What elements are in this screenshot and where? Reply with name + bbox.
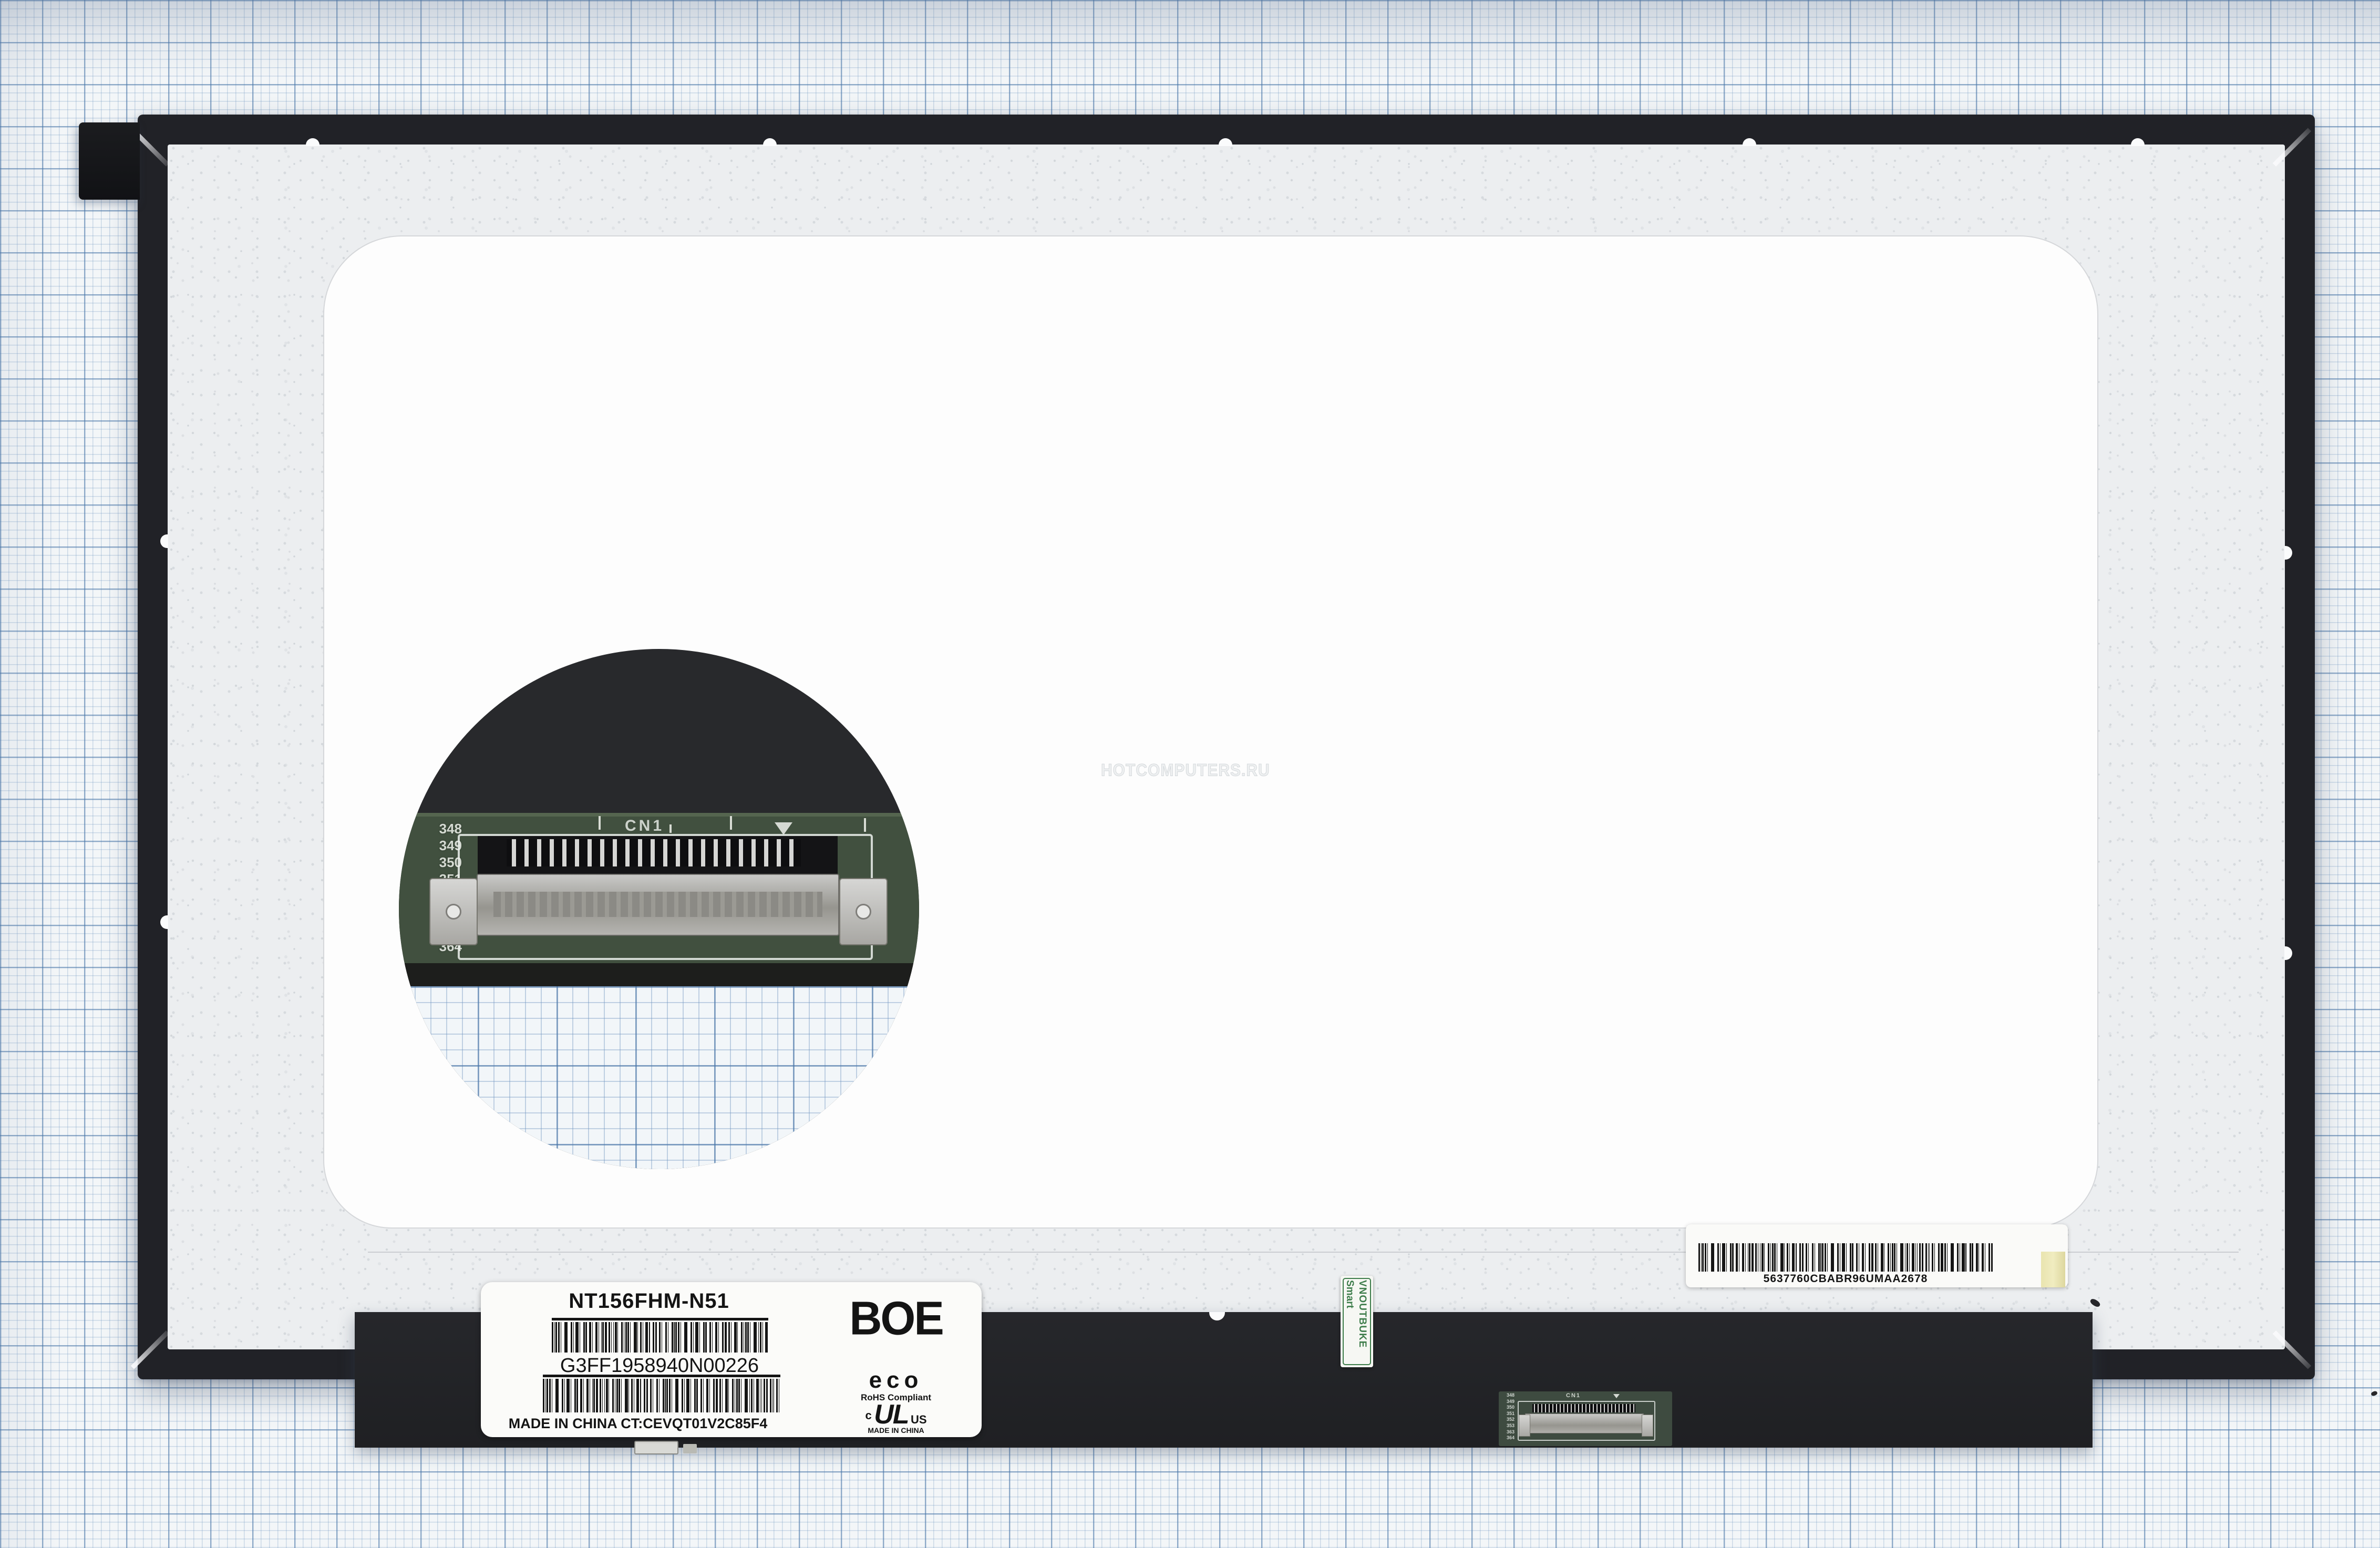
- silkscreen-tick: [864, 818, 866, 832]
- product-photo-lcd-panel: HOTCOMPUTERS.RU 348 349 350 351 352 353 …: [0, 0, 2380, 1548]
- pin-label: 352: [1500, 1417, 1514, 1423]
- barcode-serial: [543, 1379, 780, 1412]
- boe-logo: BOE: [817, 1292, 975, 1346]
- sticker-text: Smart VNOUTBUKE: [1343, 1280, 1368, 1363]
- pin-label: 349: [1500, 1399, 1514, 1405]
- mounting-tab-left: [79, 122, 140, 200]
- connector-designator: CN1: [625, 817, 664, 835]
- connector-end-tab-left: [429, 878, 478, 945]
- watermark-text: HOTCOMPUTERS.RU: [1101, 761, 1259, 781]
- silkscreen-tick: [599, 816, 601, 830]
- silkscreen-tick: [669, 824, 672, 833]
- connector-body-detail: [493, 892, 822, 917]
- serial-strip-code: 5637760CBABR96UMAA2678: [1698, 1273, 1993, 1285]
- polarity-triangle-icon: [775, 822, 792, 835]
- pin-label: 353: [1500, 1423, 1514, 1429]
- pin-label: 350: [1500, 1405, 1514, 1411]
- pin-label: 348: [1500, 1392, 1514, 1399]
- pin-label: 348: [418, 820, 462, 837]
- serial-barcode-strip: 5637760CBABR96UMAA2678: [1686, 1224, 2068, 1287]
- pin-label: 351: [1500, 1411, 1514, 1417]
- barcode-serial-strip: [1698, 1243, 1993, 1272]
- sticker-line2: VNOUTBUKE: [1357, 1280, 1368, 1348]
- magnified-graph-paper: [399, 986, 919, 1169]
- pin-label: 363: [1500, 1429, 1514, 1436]
- ul-logo: UL: [874, 1399, 908, 1430]
- connector-metal-body: [1525, 1413, 1644, 1433]
- ul-c-prefix: c: [865, 1409, 871, 1422]
- eco-logo: eco: [817, 1367, 975, 1394]
- pin-number-column-small: 348 349 350 351 352 353 363 364: [1500, 1392, 1514, 1441]
- pcb-edge-shadow: [399, 963, 919, 986]
- label-rule: [552, 1318, 768, 1320]
- serial-number: G3FF1958940N00226: [533, 1355, 786, 1377]
- connector-end-tab-left: [1519, 1415, 1530, 1437]
- ul-us-suffix: US: [911, 1413, 927, 1426]
- connector-metal-body: [477, 874, 839, 936]
- connector-pin-comb: [1532, 1404, 1635, 1412]
- connector-designator-small: CN1: [1566, 1392, 1581, 1399]
- silkscreen-tick: [730, 816, 732, 830]
- small-board-component: [683, 1444, 697, 1453]
- barcode-model: [552, 1322, 768, 1353]
- sticker-line1: Smart: [1344, 1280, 1355, 1308]
- connector-magnifier-inset: 348 349 350 351 352 353 363 364 CN1: [399, 649, 919, 1169]
- small-board-connector: [634, 1441, 678, 1454]
- connector-screw-left: [446, 904, 461, 920]
- yellow-pull-tab: [2041, 1252, 2065, 1287]
- pin-label: 364: [1500, 1435, 1514, 1441]
- reseller-sticker: Smart VNOUTBUKE: [1341, 1276, 1373, 1367]
- ul-made-in-china: MADE IN CHINA: [817, 1426, 975, 1435]
- polarity-triangle-icon: [1613, 1394, 1620, 1398]
- pin-label: 349: [418, 837, 462, 854]
- connector-end-tab-right: [839, 878, 888, 945]
- manufacturer-label: NT156FHM-N51 G3FF1958940N00226 MADE IN C…: [481, 1282, 982, 1437]
- edp-connector-actual: 348 349 350 351 352 353 363 364 CN1: [1499, 1391, 1672, 1446]
- origin-ct-line: MADE IN CHINA CT:CEVQT01V2C85F4: [488, 1416, 788, 1432]
- label-rule: [543, 1375, 780, 1377]
- connector-end-tab-right: [1642, 1415, 1653, 1437]
- connector-pin-comb: [507, 839, 801, 866]
- model-number: NT156FHM-N51: [512, 1289, 786, 1313]
- pin-label: 350: [418, 854, 462, 871]
- connector-screw-right: [856, 904, 871, 920]
